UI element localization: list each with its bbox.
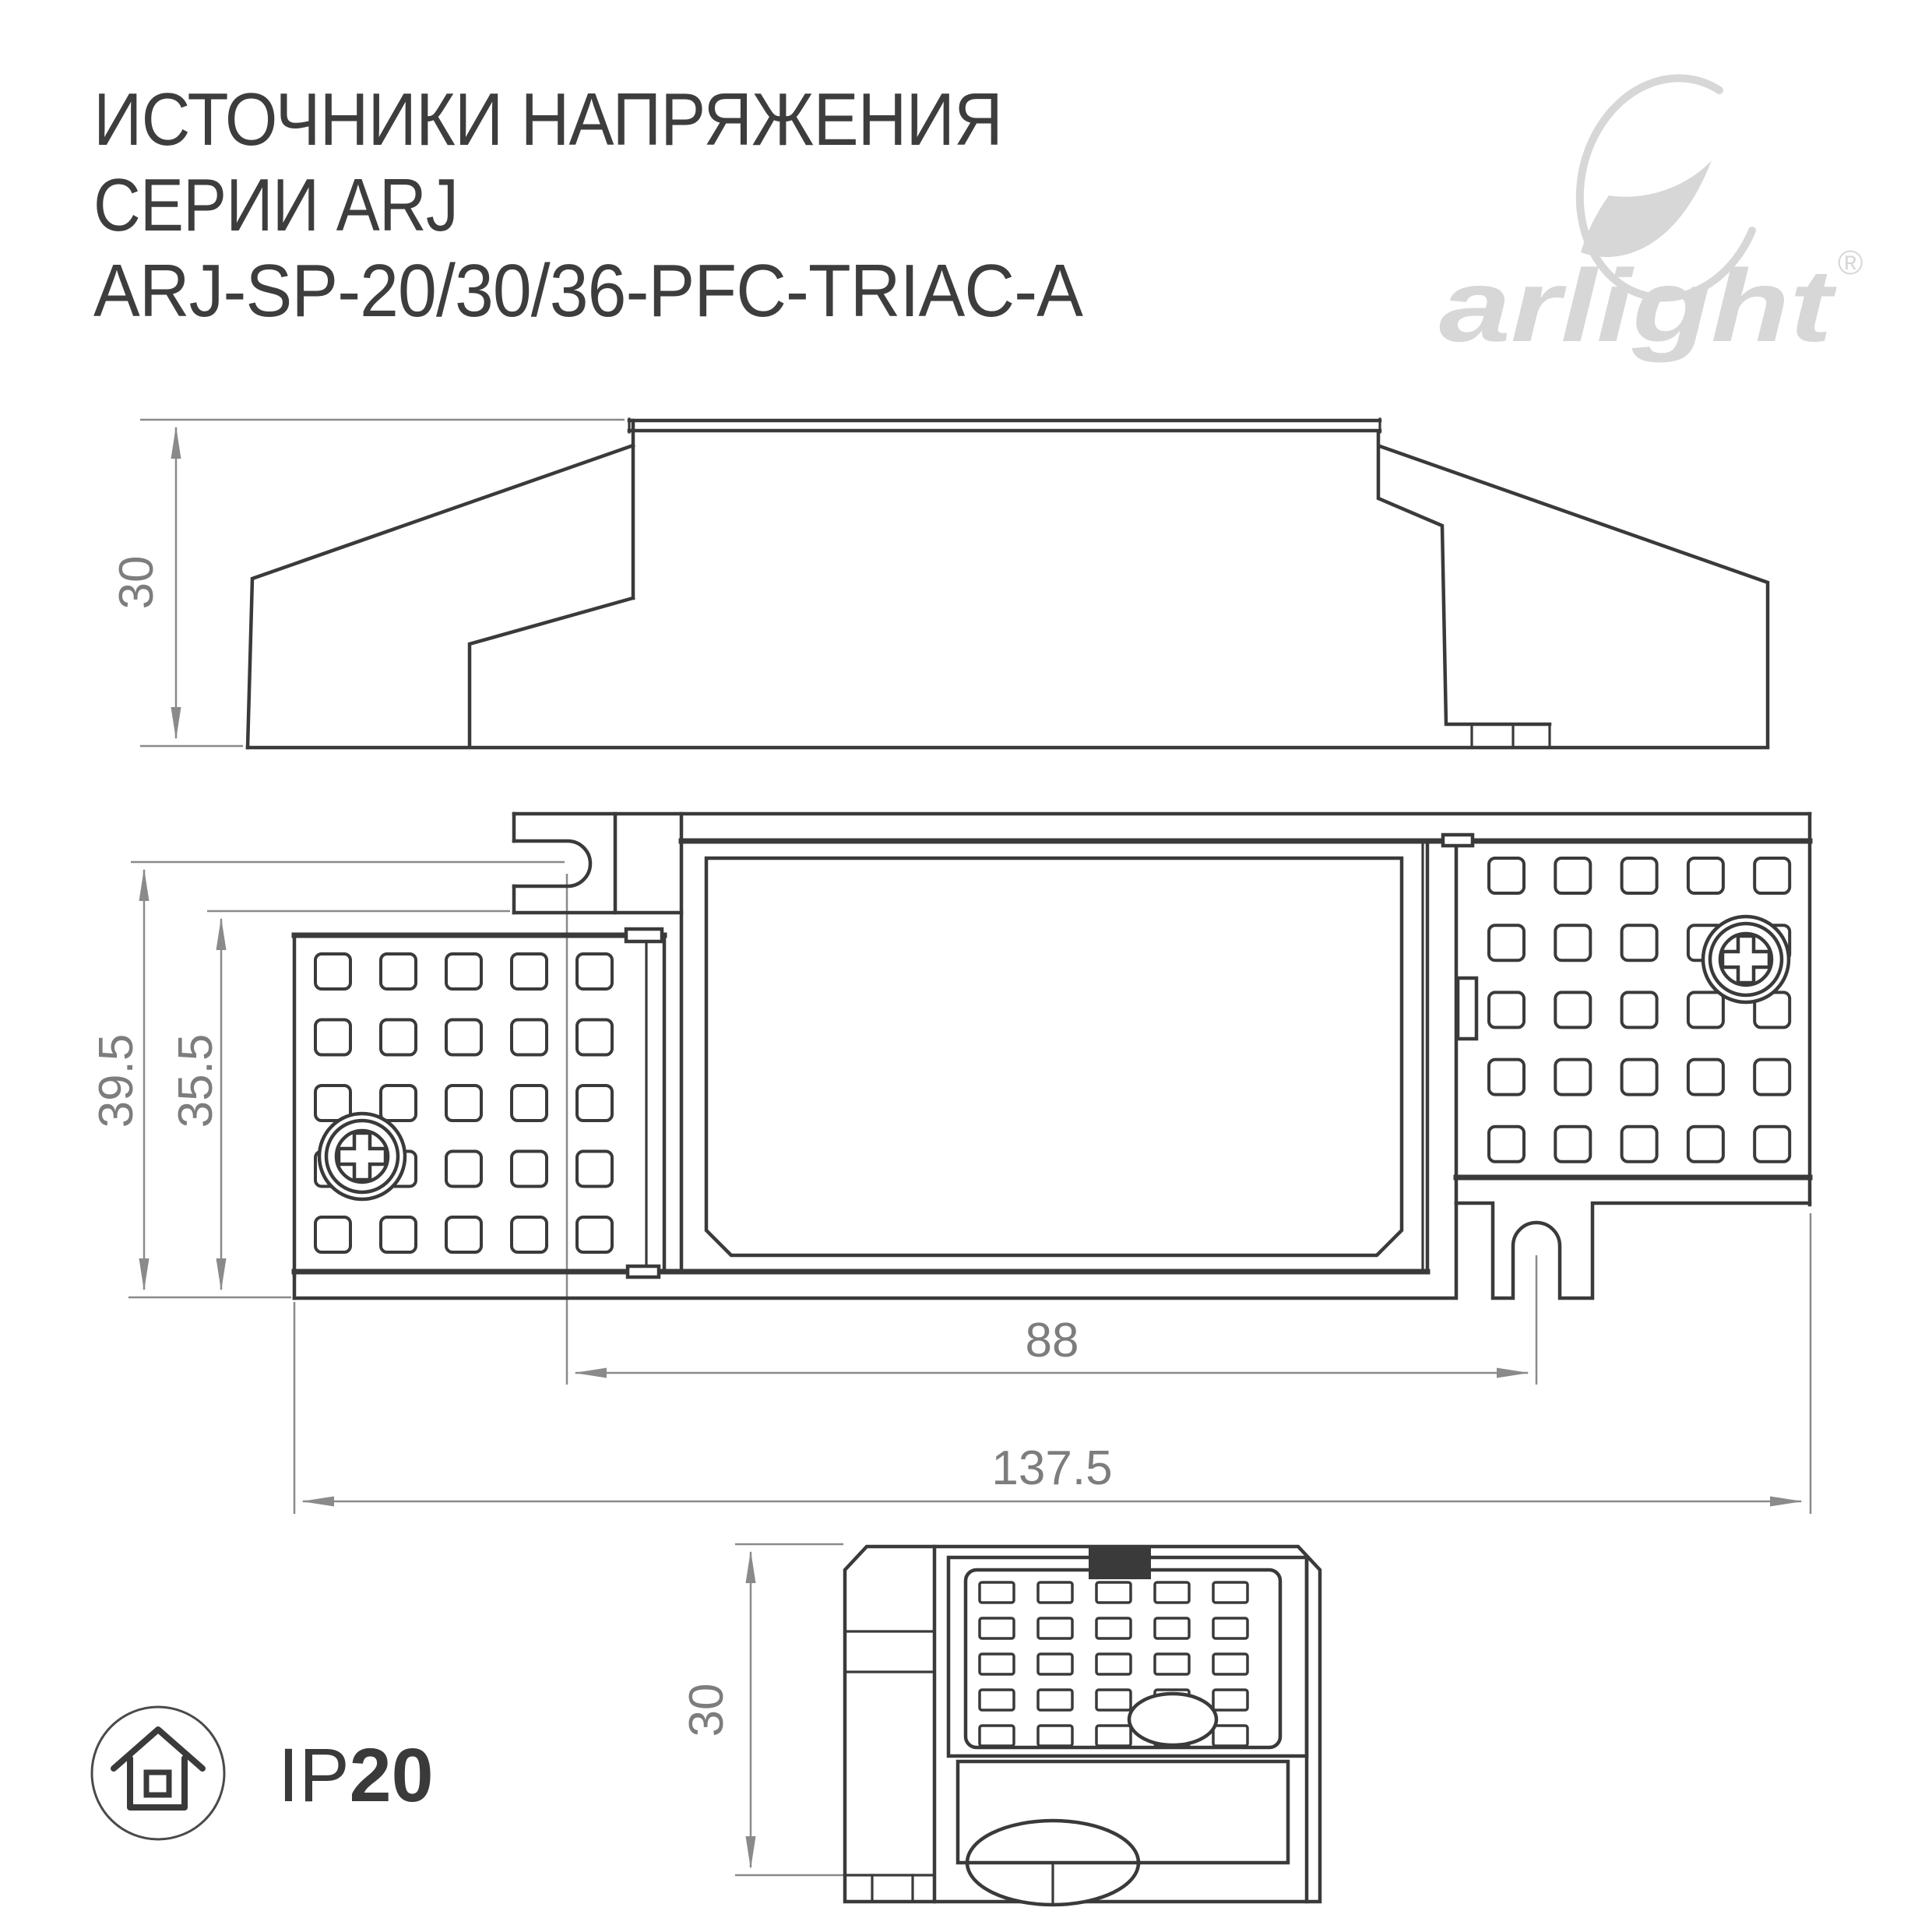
mounting-slot-right: [1456, 1203, 1810, 1298]
vent-hole: [1754, 1060, 1789, 1095]
vent-hole: [1622, 858, 1657, 893]
mounting-slot-left: [514, 814, 681, 913]
vent-hole: [1555, 992, 1590, 1027]
vent-hole: [1555, 925, 1590, 960]
front-oval-knockout-upper: [1129, 1694, 1216, 1745]
side-view-height-dimension: 30: [110, 420, 625, 746]
vent-hole: [1489, 992, 1524, 1027]
vent-hole: [1038, 1690, 1072, 1710]
vent-hole: [577, 1152, 612, 1187]
vent-hole: [577, 954, 612, 989]
vent-hole: [980, 1690, 1014, 1710]
vent-hole: [980, 1582, 1014, 1603]
vent-hole: [512, 1086, 547, 1121]
vent-hole: [980, 1618, 1014, 1638]
vent-hole: [1754, 1127, 1789, 1162]
ip-rating-badge: IP20: [92, 1707, 434, 1839]
page-title-line-1: ИСТОЧНИКИ НАПРЯЖЕНИЯ: [93, 78, 1002, 161]
vent-hole: [1622, 992, 1657, 1027]
vent-hole: [315, 954, 350, 989]
ip-prefix: IP: [278, 1733, 350, 1818]
vent-hole: [1096, 1690, 1131, 1710]
datasheet-page: ИСТОЧНИКИ НАПРЯЖЕНИЯ СЕРИИ ARJ ARJ-SP-20…: [0, 0, 1932, 1932]
page-title: ИСТОЧНИКИ НАПРЯЖЕНИЯ СЕРИИ ARJ ARJ-SP-20…: [93, 78, 1083, 333]
top-view-hole-spacing-dimension: 88: [567, 874, 1536, 1385]
vent-hole: [1688, 992, 1723, 1027]
vent-hole: [512, 1152, 547, 1187]
vent-hole: [1622, 925, 1657, 960]
top-hole-spacing-value: 88: [1026, 1314, 1079, 1367]
vent-hole: [1555, 1060, 1590, 1095]
vent-hole: [1489, 925, 1524, 960]
vent-hole: [577, 1020, 612, 1055]
vent-hole: [315, 1020, 350, 1055]
vent-hole: [381, 1217, 416, 1252]
vent-hole: [512, 954, 547, 989]
vent-hole: [381, 1020, 416, 1055]
vent-hole: [1213, 1654, 1248, 1674]
house-icon: [92, 1707, 224, 1839]
vent-hole: [1213, 1690, 1248, 1710]
right-terminal-grid: [1489, 858, 1789, 1162]
vent-hole: [381, 954, 416, 989]
vent-hole: [1038, 1582, 1072, 1603]
vent-hole: [446, 954, 481, 989]
vent-hole: [1096, 1726, 1131, 1746]
vent-hole: [446, 1152, 481, 1187]
vent-hole: [1688, 858, 1723, 893]
phillips-screw-icon: [1703, 917, 1789, 1002]
top-height-value: 39.5: [90, 1034, 143, 1128]
vent-hole: [1489, 1127, 1524, 1162]
ip-value: 20: [350, 1733, 434, 1818]
vent-hole: [1038, 1654, 1072, 1674]
vent-hole: [1155, 1582, 1189, 1603]
arlight-logo-text: arlight: [1439, 248, 1837, 363]
front-height-value: 30: [680, 1684, 734, 1737]
front-view-height-dimension: 30: [680, 1544, 843, 1875]
side-view-outline: [248, 419, 1768, 748]
vent-hole: [1038, 1618, 1072, 1638]
front-connector-mark: [1089, 1548, 1151, 1579]
left-terminal-block: [294, 929, 664, 1277]
vent-hole: [980, 1654, 1014, 1674]
top-length-value: 137.5: [991, 1441, 1112, 1495]
vent-hole: [1096, 1582, 1131, 1603]
vent-hole: [1622, 1127, 1657, 1162]
side-view: 30: [110, 419, 1768, 748]
vent-hole: [1622, 1060, 1657, 1095]
registered-trademark-icon: ®: [1838, 244, 1863, 282]
top-view: 39.5 35.5 88 137.5: [90, 814, 1811, 1514]
vent-hole: [1155, 1618, 1189, 1638]
phillips-screw-icon: [319, 1114, 405, 1199]
vent-hole: [1489, 1060, 1524, 1095]
vent-hole: [577, 1086, 612, 1121]
vent-hole: [1489, 858, 1524, 893]
vent-hole: [315, 1217, 350, 1252]
vent-hole: [1213, 1582, 1248, 1603]
vent-hole: [1096, 1618, 1131, 1638]
vent-hole: [1038, 1726, 1072, 1746]
vent-hole: [381, 1086, 416, 1121]
arlight-logo: arlight ®: [1439, 78, 1863, 363]
vent-hole: [1213, 1726, 1248, 1746]
vent-hole: [1096, 1654, 1131, 1674]
page-title-line-3: ARJ-SP-20/30/36-PFC-TRIAC-A: [93, 249, 1083, 333]
svg-text:IP20: IP20: [278, 1733, 434, 1818]
vent-hole: [1555, 858, 1590, 893]
vent-hole: [1688, 1060, 1723, 1095]
top-view-height-dimension: 39.5: [90, 862, 565, 1297]
vent-hole: [512, 1217, 547, 1252]
vent-hole: [1155, 1654, 1189, 1674]
page-title-line-2: СЕРИИ ARJ: [93, 164, 458, 247]
vent-hole: [512, 1020, 547, 1055]
vent-hole: [446, 1086, 481, 1121]
vent-hole: [1688, 1127, 1723, 1162]
vent-hole: [1213, 1618, 1248, 1638]
vent-hole: [1555, 1127, 1590, 1162]
front-view-outline: [845, 1547, 1320, 1905]
front-view: 30: [680, 1544, 1320, 1905]
side-height-value: 30: [110, 556, 164, 610]
top-view-inner-height-dimension: 35.5: [169, 911, 510, 1290]
vent-hole: [446, 1217, 481, 1252]
vent-hole: [577, 1217, 612, 1252]
vent-hole: [980, 1726, 1014, 1746]
right-terminal-block: [1443, 814, 1810, 1205]
top-inner-height-value: 35.5: [169, 1034, 223, 1128]
vent-hole: [446, 1020, 481, 1055]
vent-hole: [1754, 858, 1789, 893]
